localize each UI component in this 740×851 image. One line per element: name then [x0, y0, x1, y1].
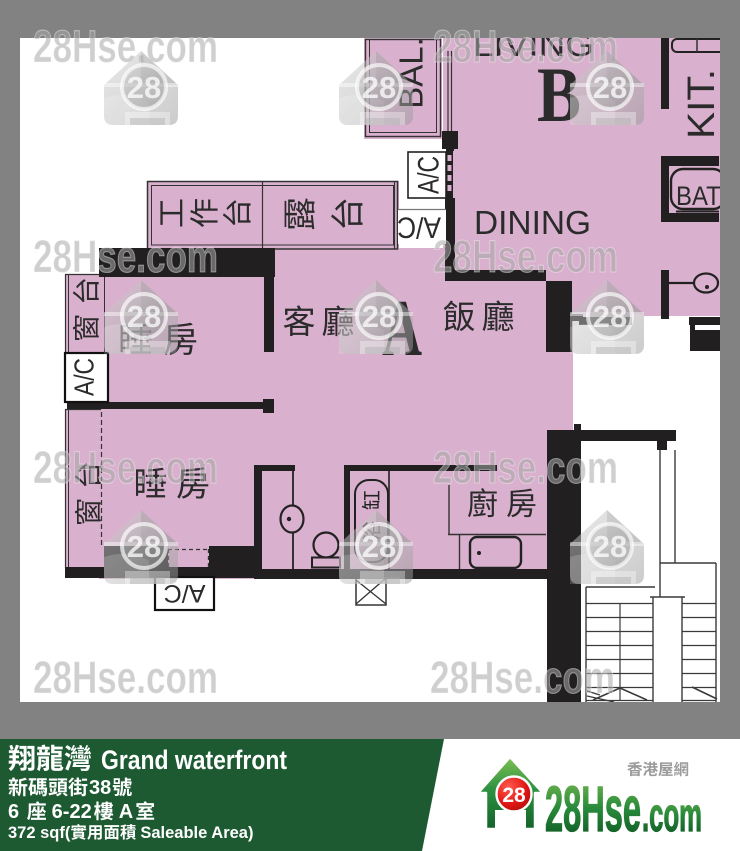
svg-text:28Hse.com: 28Hse.com [33, 652, 218, 703]
svg-text:Saleable Area): Saleable Area) [140, 824, 253, 842]
svg-text:28Hse.com: 28Hse.com [433, 231, 618, 282]
svg-text:28Hse.com: 28Hse.com [433, 21, 618, 72]
svg-text:6: 6 [8, 801, 19, 823]
svg-text:28Hse.com: 28Hse.com [33, 21, 218, 72]
svg-text:28: 28 [502, 784, 526, 807]
svg-text:28Hse: 28Hse [545, 773, 641, 845]
svg-text:.com: .com [642, 788, 702, 841]
svg-text:372 sqf(: 372 sqf( [8, 824, 71, 842]
svg-text:Grand waterfront: Grand waterfront [101, 745, 287, 775]
svg-text:6-22: 6-22 [52, 801, 92, 823]
svg-text:KIT.: KIT. [681, 69, 723, 139]
svg-text:28Hse.com: 28Hse.com [33, 231, 218, 282]
svg-text:38: 38 [89, 777, 111, 799]
svg-text:A: A [119, 801, 133, 823]
svg-text:A/C: A/C [69, 358, 100, 396]
svg-text:28Hse.com: 28Hse.com [430, 652, 615, 703]
svg-text:A/C: A/C [413, 156, 446, 194]
svg-text:28Hse.com: 28Hse.com [433, 442, 618, 493]
svg-text:28Hse.com: 28Hse.com [33, 442, 218, 493]
